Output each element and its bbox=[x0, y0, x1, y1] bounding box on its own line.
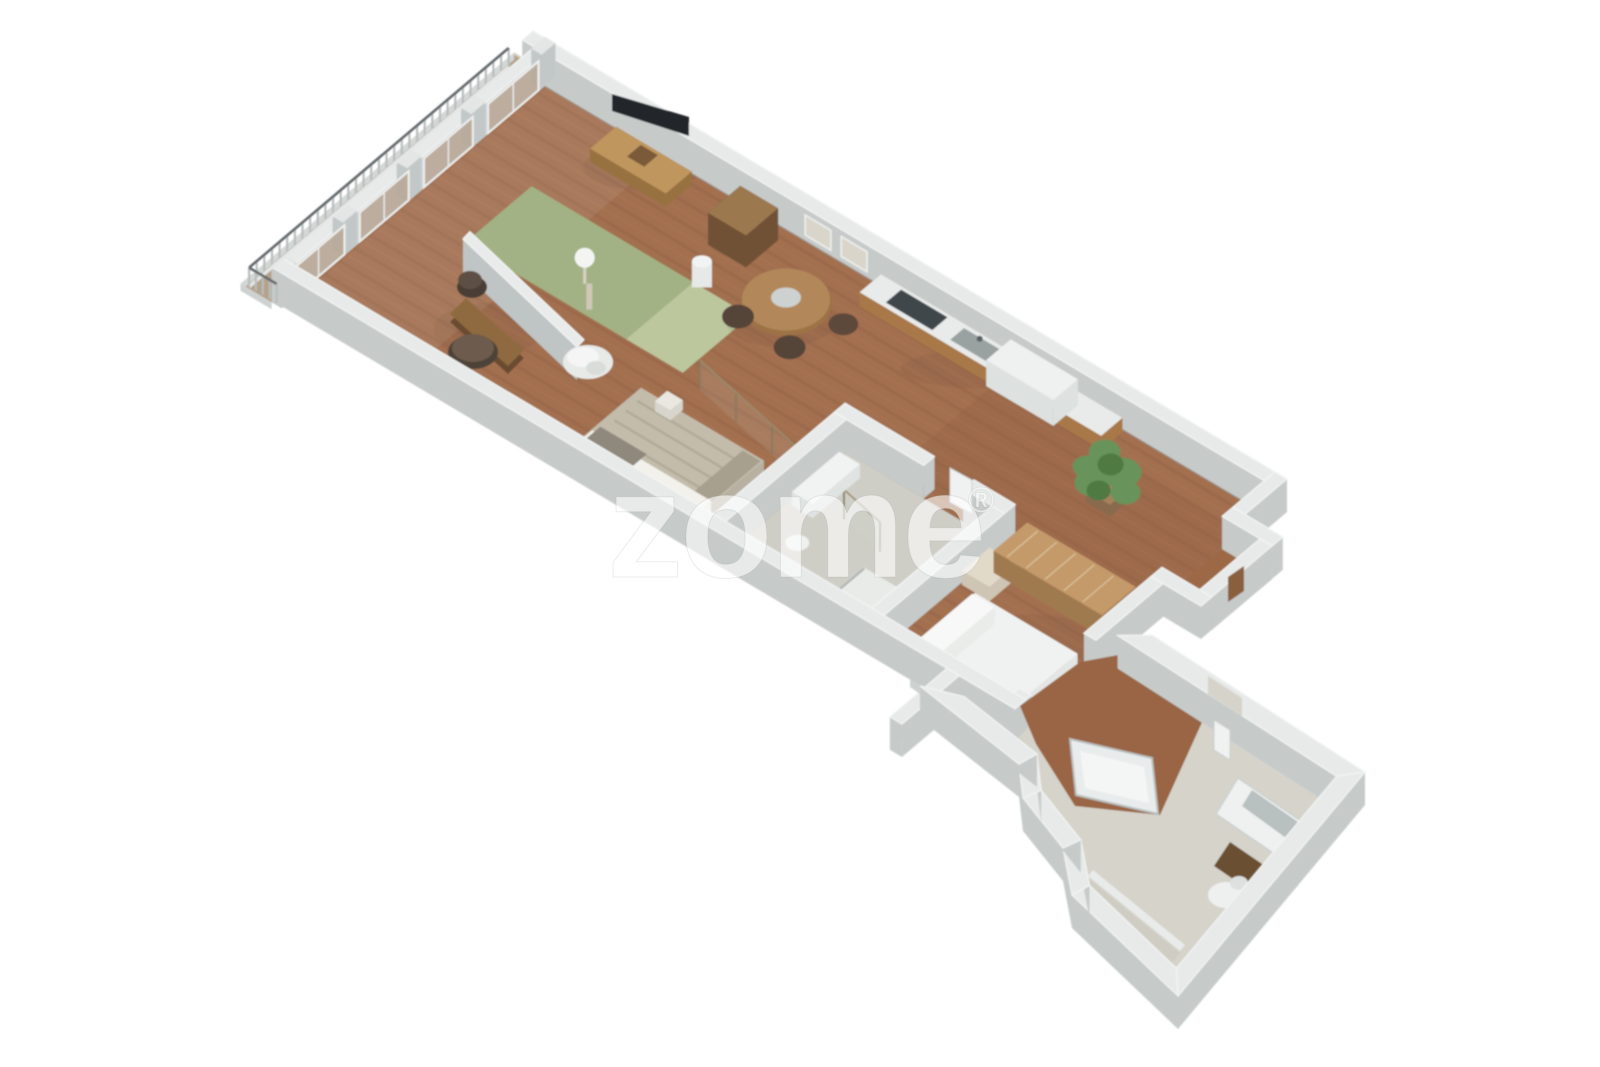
svg-text:zome: zome bbox=[607, 440, 984, 610]
svg-text:®: ® bbox=[968, 479, 995, 520]
